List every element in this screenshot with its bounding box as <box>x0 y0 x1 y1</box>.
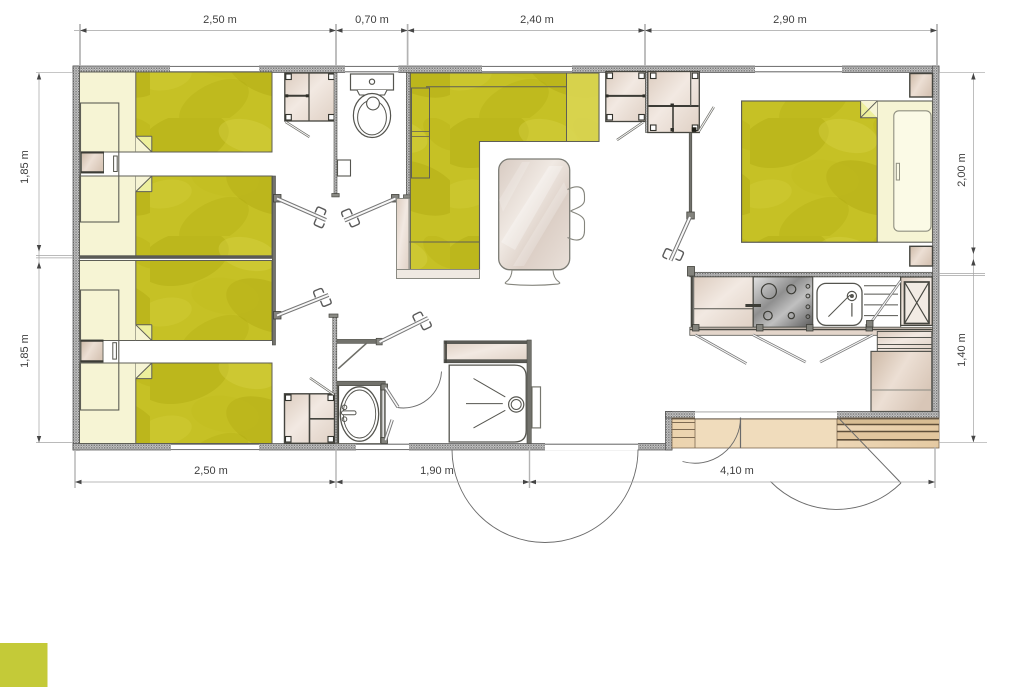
svg-text:2,90 m: 2,90 m <box>773 14 807 26</box>
svg-text:1,90 m: 1,90 m <box>420 465 454 477</box>
svg-text:0,70 m: 0,70 m <box>355 14 389 26</box>
svg-text:1,85 m: 1,85 m <box>19 150 31 184</box>
svg-text:2,50 m: 2,50 m <box>194 465 228 477</box>
svg-text:2,50 m: 2,50 m <box>203 14 237 26</box>
svg-text:1,40 m: 1,40 m <box>956 333 968 367</box>
svg-text:1,85 m: 1,85 m <box>19 334 31 368</box>
svg-text:4,10 m: 4,10 m <box>720 465 754 477</box>
svg-text:2,40 m: 2,40 m <box>520 14 554 26</box>
svg-text:2,00 m: 2,00 m <box>956 153 968 187</box>
